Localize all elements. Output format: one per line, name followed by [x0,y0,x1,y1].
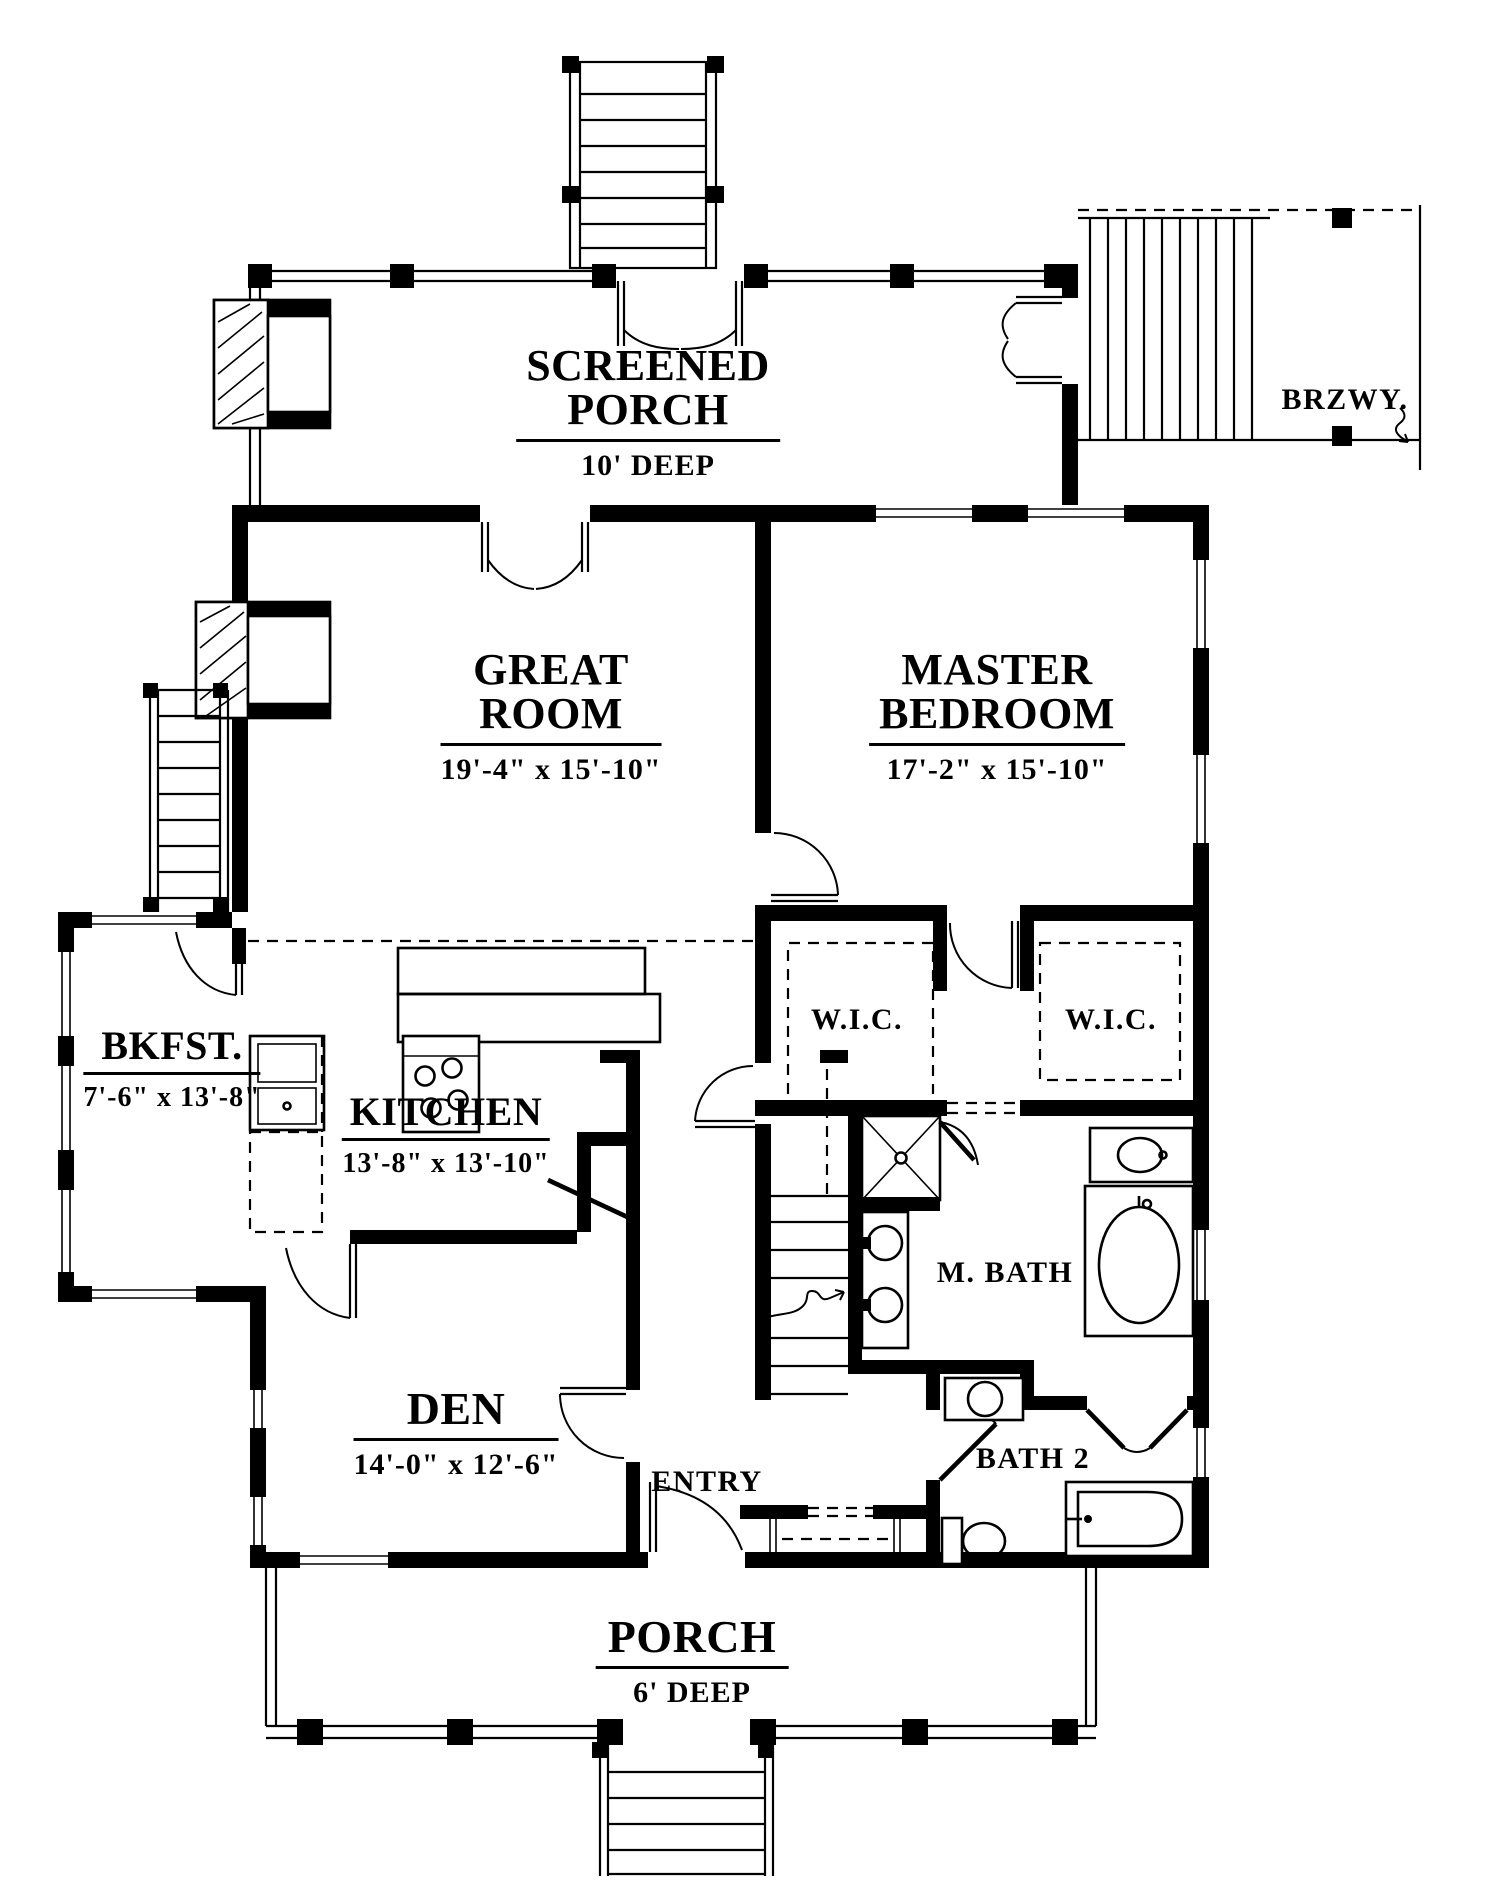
great-room-fireplace-icon [196,602,330,718]
lavatory-icon [1090,1128,1193,1182]
bath2-sink-icon [945,1378,1023,1420]
breezeway [1078,205,1420,470]
double-vanity-icon [862,1212,908,1348]
label-screened-porch: SCREENEDPORCH 10' DEEP [516,344,780,483]
label-wic-right: W.I.C. [1065,1003,1157,1037]
floor-plan: SCREENEDPORCH 10' DEEP BRZWY. GREATROOM … [0,0,1492,1880]
label-bath-2: BATH 2 [976,1442,1090,1476]
shower-icon [862,1116,978,1200]
label-kitchen: KITCHEN 13'-8" x 13'-10" [342,1092,550,1180]
master-bath-fixtures [862,1116,1193,1348]
floor-plan-drawing [0,0,1492,1880]
label-brzwy: BRZWY. [1281,383,1408,417]
label-great-room: GREATROOM 19'-4" x 15'-10" [441,648,662,787]
label-entry: ENTRY [651,1465,762,1499]
label-bkfst: BKFST. 7'-6" x 13'-8" [83,1026,260,1114]
label-wic-left: W.I.C. [811,1003,903,1037]
bottom-stairs [592,1742,774,1876]
bath2-tub-icon [1066,1482,1193,1556]
label-den: DEN 14'-0" x 12'-6" [354,1386,559,1482]
bath2-toilet-icon [942,1518,1005,1564]
label-master-bath: M. BATH [937,1256,1074,1290]
porch-fireplace-icon [214,300,330,428]
breezeway-stairs [1090,218,1252,440]
top-entry-stairs [562,56,724,268]
porch-french-door [618,281,742,349]
tub-alcove-double-door [1087,1410,1187,1452]
label-porch: PORCH 6' DEEP [596,1614,789,1710]
porch-breezeway-door [1003,264,1078,505]
label-master-bedroom: MASTERBEDROOM 17'-2" x 15'-10" [869,648,1125,787]
master-tub-icon [1085,1186,1193,1336]
